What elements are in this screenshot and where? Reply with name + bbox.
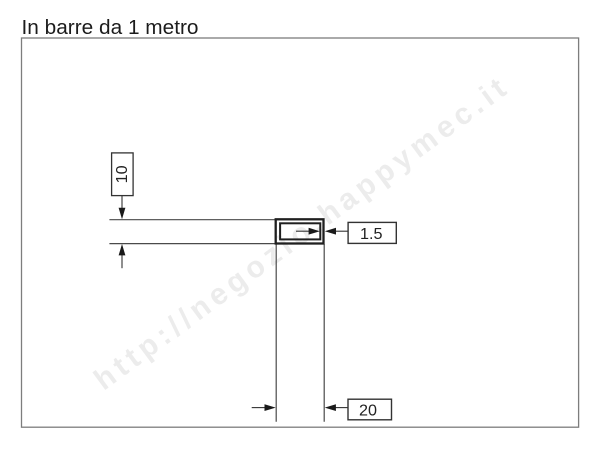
svg-text:20: 20 — [359, 402, 377, 419]
svg-text:10: 10 — [114, 165, 131, 183]
svg-text:1.5: 1.5 — [360, 226, 383, 243]
svg-text:In barre da 1 metro: In barre da 1 metro — [22, 17, 199, 39]
